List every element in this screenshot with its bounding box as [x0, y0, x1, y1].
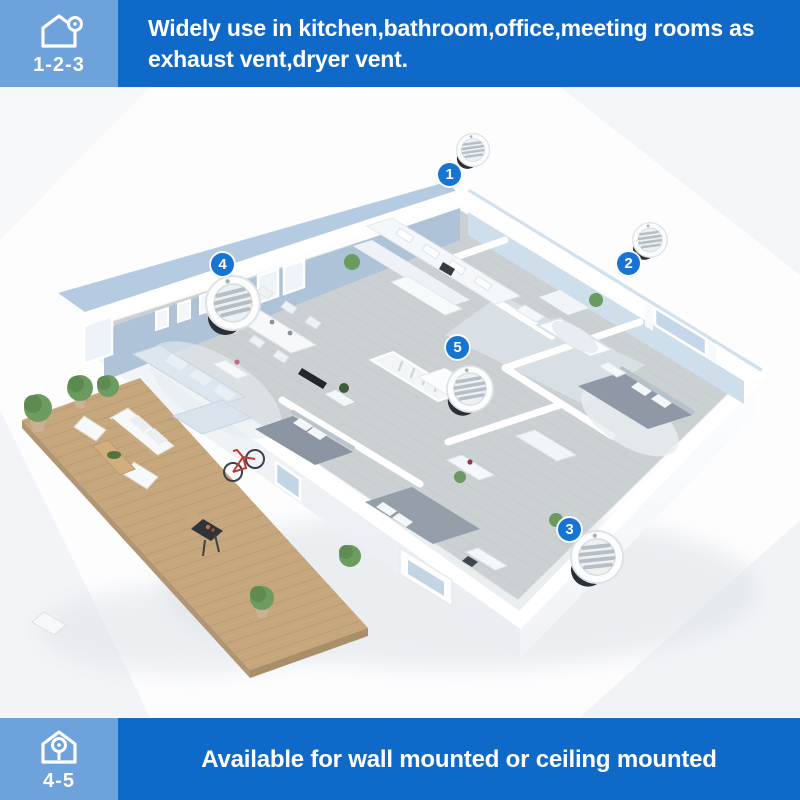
vent-1 [454, 131, 492, 170]
marker-1-label: 1 [445, 166, 453, 183]
header-banner: Widely use in kitchen,bathroom,office,me… [118, 0, 800, 87]
header-badge: 1-2-3 [0, 0, 118, 87]
footer-bar: 4-5 Available for wall mounted or ceilin… [0, 718, 800, 800]
footer-badge-label: 4-5 [43, 770, 75, 793]
header-bar: 1-2-3 Widely use in kitchen,bathroom,off… [0, 0, 800, 87]
header-badge-label: 1-2-3 [33, 54, 85, 77]
marker-3-label: 3 [565, 521, 573, 538]
footer-badge: 4-5 [0, 718, 118, 800]
marker-4-label: 4 [218, 256, 226, 273]
footer-banner: Available for wall mounted or ceiling mo… [118, 718, 800, 800]
header-banner-line1: Widely use in kitchen,bathroom,office,me… [148, 13, 800, 44]
header-banner-line2: exhaust vent,dryer vent. [148, 44, 800, 75]
location-marker-3: 3 [558, 518, 581, 541]
location-marker-1: 1 [438, 163, 461, 186]
location-marker-2: 2 [617, 252, 640, 275]
product-infographic: { "header": { "badge_label": "1-2-3", "b… [0, 0, 800, 800]
marker-2-label: 2 [624, 255, 632, 272]
floorplan-illustration [0, 87, 800, 718]
marker-5-label: 5 [453, 339, 461, 356]
house-with-wall-vent-icon [34, 10, 84, 52]
footer-banner-text: Available for wall mounted or ceiling mo… [201, 744, 717, 775]
house-with-ceiling-vent-icon [34, 726, 84, 768]
floorplan-stage [0, 87, 800, 718]
location-marker-5: 5 [446, 336, 469, 359]
location-marker-4: 4 [211, 253, 234, 276]
